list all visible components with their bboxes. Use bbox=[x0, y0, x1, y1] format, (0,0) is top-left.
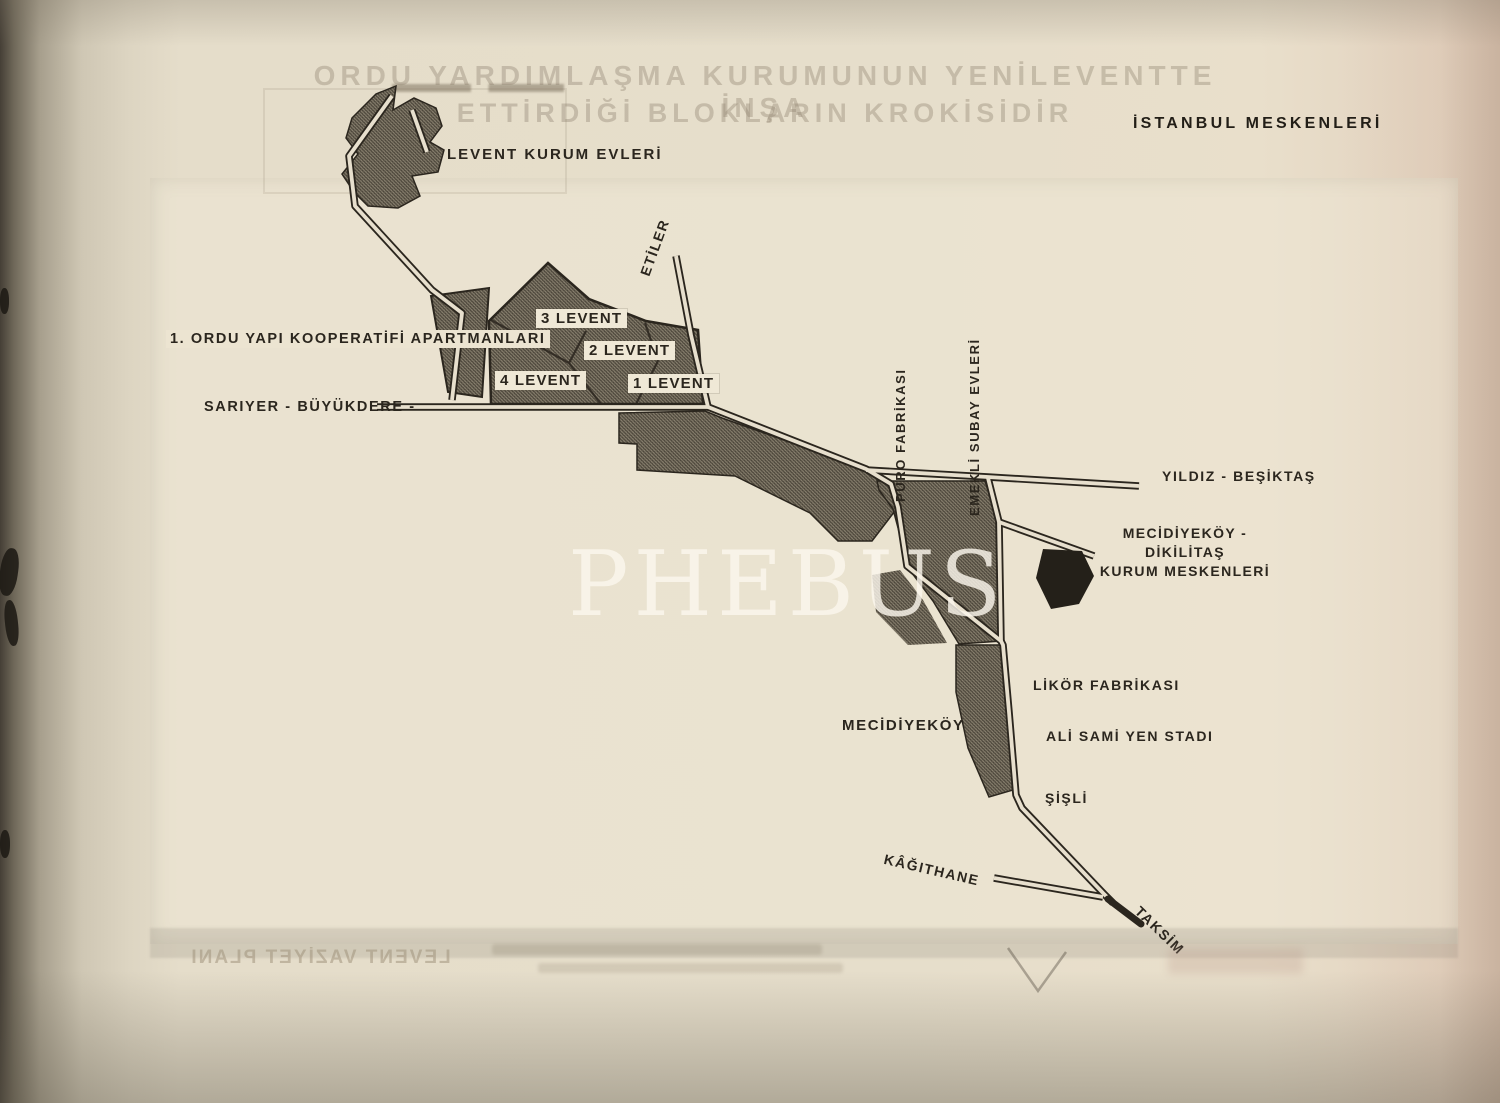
ghost-smudge-3 bbox=[1168, 948, 1303, 974]
label-ordu-yapi-kooperatifi: 1. ORDU YAPI KOOPERATİFİ APARTMANLARI bbox=[166, 330, 550, 348]
label-mecidiyekoy-dikilitas: MECİDİYEKÖY - DİKİLİTAŞ KURUM MESKENLERİ bbox=[1085, 524, 1285, 581]
spine-ink-mark-4 bbox=[0, 830, 10, 858]
road-cores bbox=[349, 96, 1139, 903]
label-emekli-subay-evleri: EMEKLİ SUBAY EVLERİ bbox=[967, 338, 982, 516]
pencil-v-mark bbox=[1008, 948, 1066, 991]
label-4-levent: 4 LEVENT bbox=[495, 371, 586, 390]
label-sisli: ŞİŞLİ bbox=[1045, 790, 1088, 806]
ghost-footer-mirrored: LEVENT VAZİYET PLANI bbox=[165, 947, 475, 969]
label-mecidiyekoy-dikilitas-line1: MECİDİYEKÖY - DİKİLİTAŞ bbox=[1085, 524, 1285, 562]
ghost-smudge-2 bbox=[538, 963, 843, 973]
road-casings bbox=[349, 96, 1139, 903]
label-mecidiyekoy: MECİDİYEKÖY bbox=[842, 717, 965, 734]
label-ali-sami-yen: ALİ SAMİ YEN STADI bbox=[1046, 728, 1214, 744]
label-2-levent: 2 LEVENT bbox=[584, 341, 675, 360]
page-title: İSTANBUL MESKENLERİ bbox=[1133, 115, 1383, 133]
label-3-levent: 3 LEVENT bbox=[536, 309, 627, 328]
label-likor-fabrikasi: LİKÖR FABRİKASI bbox=[1033, 677, 1180, 693]
book-page: ORDU YARDIMLAŞMA KURUMUNUN YENİLEVENTTE … bbox=[0, 0, 1500, 1103]
label-1-levent: 1 LEVENT bbox=[628, 374, 719, 393]
spine-ink-mark-1 bbox=[0, 288, 9, 314]
label-sariyer-buyukdere: SARIYER - BÜYÜKDERE - bbox=[204, 399, 416, 415]
label-yildiz-besiktas: YILDIZ - BEŞİKTAŞ bbox=[1162, 468, 1316, 484]
label-mecidiyekoy-dikilitas-line2: KURUM MESKENLERİ bbox=[1085, 562, 1285, 581]
phebus-watermark: PHEBUS bbox=[568, 532, 1006, 637]
label-levent-kurum-evleri: LEVENT KURUM EVLERİ bbox=[447, 146, 663, 163]
ghost-smudge-1 bbox=[492, 944, 822, 955]
label-puro-fabrikasi: PURO FABRİKASI bbox=[893, 368, 908, 502]
